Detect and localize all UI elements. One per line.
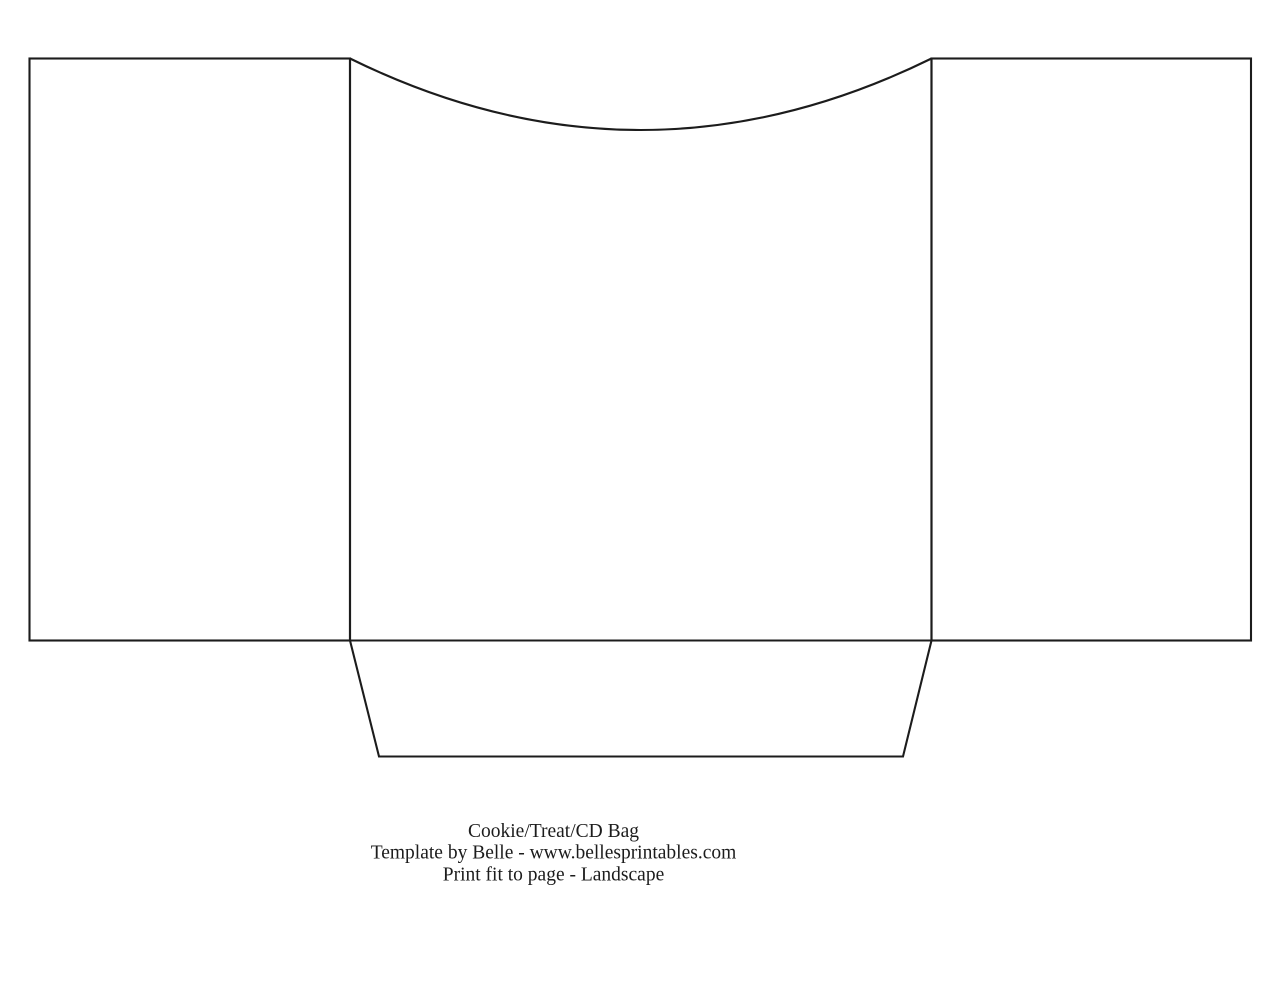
svg-text:Template by Belle - www.belles: Template by Belle - www.bellesprintables… bbox=[371, 843, 737, 864]
svg-text:Print fit to page - Landscape: Print fit to page - Landscape bbox=[443, 864, 664, 885]
svg-text:Cookie/Treat/CD Bag: Cookie/Treat/CD Bag bbox=[468, 821, 639, 842]
